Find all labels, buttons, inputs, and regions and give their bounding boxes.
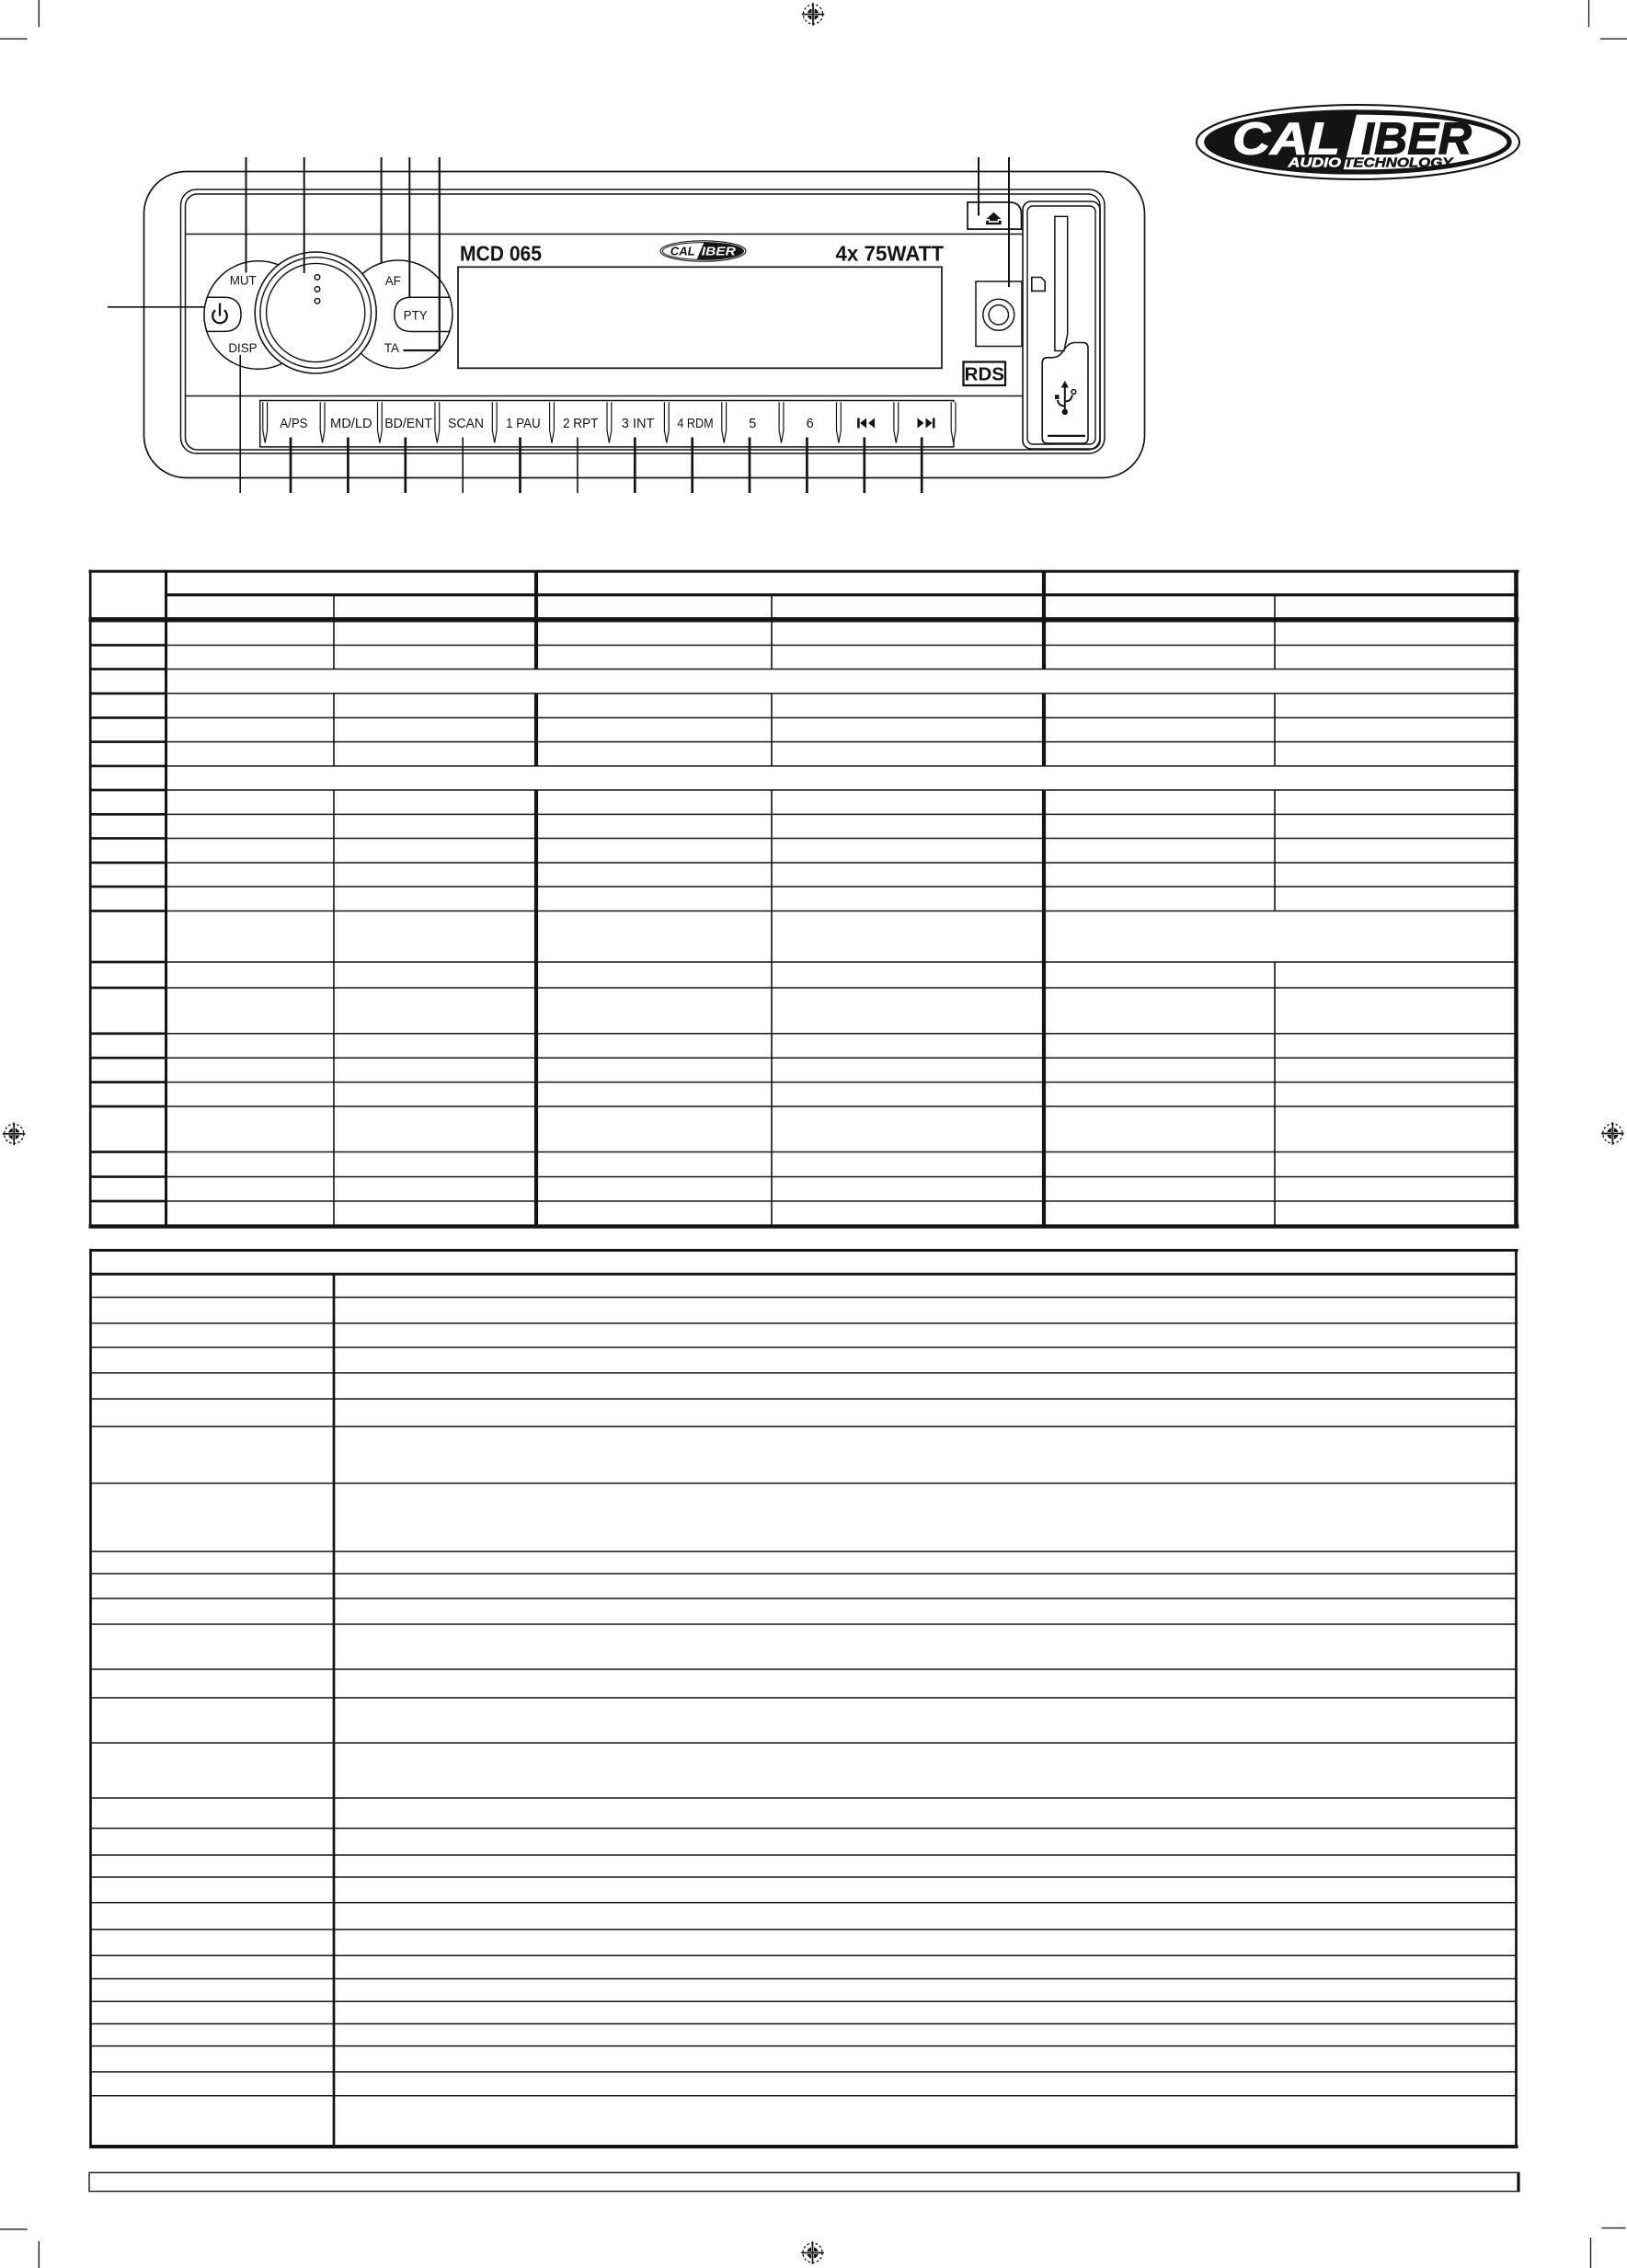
svg-text:A/PS: A/PS [280,417,307,431]
svg-text:SCAN: SCAN [448,417,484,431]
svg-text:TECHNOLOGY: TECHNOLOGY [1344,156,1454,171]
svg-text:PTY: PTY [404,308,428,322]
svg-text:IBER: IBER [702,246,736,258]
svg-text:4x 75WATT: 4x 75WATT [836,242,945,266]
svg-text:AF: AF [385,274,401,288]
svg-text:4 RDM: 4 RDM [677,417,713,431]
svg-text:DISP: DISP [228,341,257,355]
svg-text:5: 5 [749,417,756,431]
svg-text:RDS: RDS [965,364,1004,385]
svg-text:MCD 065: MCD 065 [460,242,542,266]
svg-text:2 RPT: 2 RPT [563,417,599,431]
svg-text:TA: TA [384,341,399,355]
svg-text:AUDIO: AUDIO [1287,156,1341,171]
svg-text:6: 6 [807,417,814,431]
svg-text:MD/LD: MD/LD [330,417,372,431]
svg-text:1 PAU: 1 PAU [506,417,541,431]
svg-text:BD/ENT: BD/ENT [384,417,432,431]
svg-text:3 INT: 3 INT [622,417,655,431]
svg-text:MUT: MUT [230,274,257,288]
svg-text:CAL: CAL [670,246,695,258]
